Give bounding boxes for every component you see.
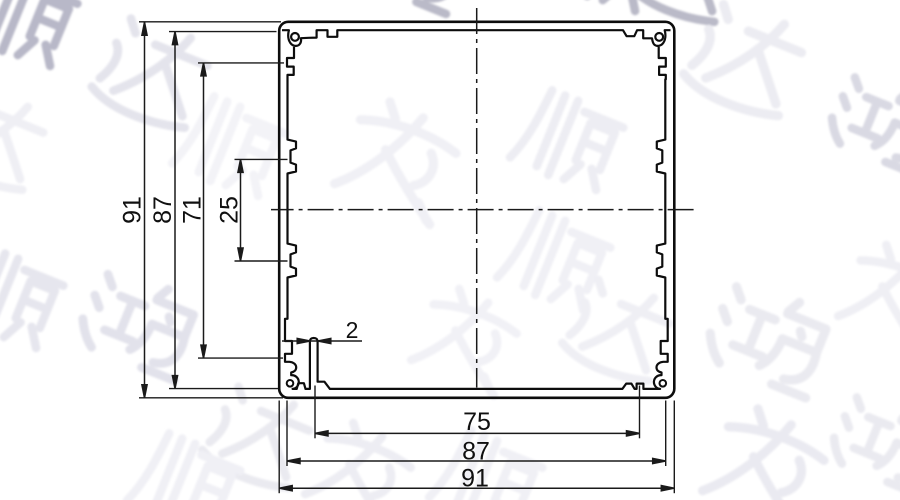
svg-text:25: 25 [216, 196, 244, 224]
svg-text:91: 91 [119, 196, 147, 224]
svg-text:91: 91 [461, 465, 489, 493]
svg-text:2: 2 [346, 317, 359, 343]
svg-text:75: 75 [463, 408, 491, 436]
svg-text:87: 87 [462, 438, 490, 466]
svg-text:71: 71 [179, 196, 207, 224]
svg-text:87: 87 [149, 196, 177, 224]
